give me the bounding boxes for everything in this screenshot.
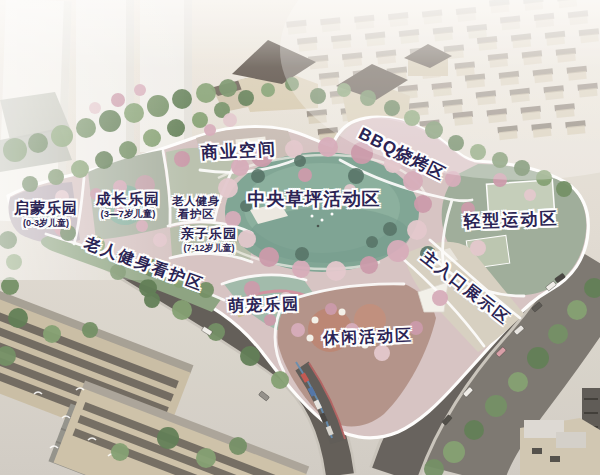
site-plan-illustration	[0, 0, 600, 475]
haze-overlays	[0, 0, 600, 475]
park-master-plan: 商业空间 BBQ烧烤区 启蒙乐园 (0-3岁儿童) 成长乐园 (3—7岁儿童) …	[0, 0, 600, 475]
